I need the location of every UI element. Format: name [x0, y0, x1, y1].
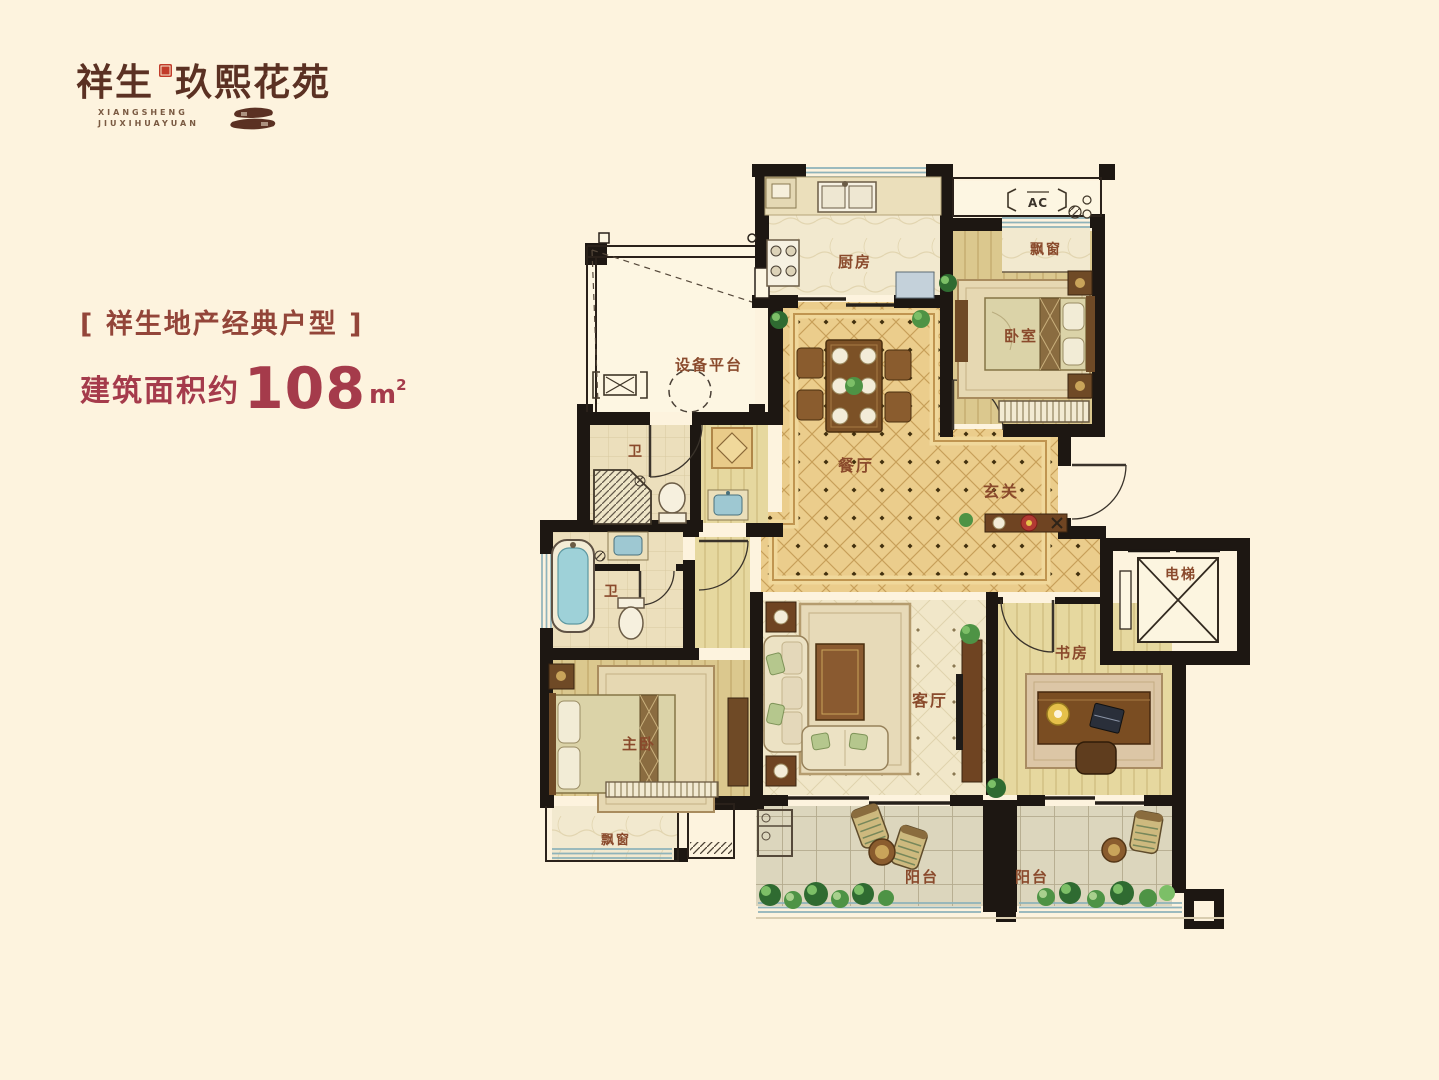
label-ac-platform: AC — [1028, 196, 1048, 210]
label-dining: 餐厅 — [837, 456, 874, 475]
plant-icon — [770, 311, 788, 329]
tv-icon — [956, 674, 963, 750]
lounge-chair-icon — [1129, 810, 1164, 854]
plant-icon — [986, 778, 1006, 798]
label-bath-upper: 卫 — [628, 444, 644, 460]
stove-icon — [767, 240, 799, 286]
fridge-icon — [896, 272, 934, 298]
chair-icon — [885, 392, 911, 422]
label-bedroom: 卧室 — [1004, 327, 1038, 345]
label-equipment-platform: 设备平台 — [675, 356, 743, 374]
label-living-room: 客厅 — [912, 691, 948, 710]
label-kitchen: 厨房 — [838, 253, 872, 271]
label-balcony-left: 阳台 — [905, 868, 939, 886]
toilet-icon-2 — [618, 598, 644, 639]
chair-icon — [797, 390, 823, 420]
vanity-sink-icon-2 — [608, 532, 648, 560]
decor-tile — [712, 428, 752, 468]
label-elevator: 电梯 — [1165, 566, 1197, 583]
bed-icon — [985, 296, 1095, 372]
wardrobe-icon — [606, 782, 718, 797]
plant-icon — [912, 310, 930, 328]
plant-icon — [845, 377, 863, 395]
loveseat-icon — [802, 726, 888, 770]
pillow — [1063, 303, 1084, 330]
plant-icon — [959, 513, 973, 527]
tv-cabinet-icon — [962, 640, 982, 782]
study-furniture — [1026, 674, 1162, 774]
master-corridor — [695, 537, 750, 648]
pillow — [558, 747, 580, 789]
label-master-bedroom: 主卧 — [622, 735, 656, 753]
label-balcony-right: 阳台 — [1015, 868, 1049, 886]
cabinet-icon — [955, 300, 968, 362]
floor-drain-icon-2 — [595, 551, 605, 561]
ac-drain-icon — [1069, 206, 1081, 218]
bed-icon — [549, 693, 675, 795]
pillow — [1063, 338, 1084, 365]
wardrobe-icon — [999, 401, 1089, 422]
floor-plan: 厨房 设备平台 卫 餐厅 玄关 卧室 飘窗 卫 电梯 客厅 书房 主卧 飘窗 阳… — [0, 0, 1439, 1080]
vanity-sink-icon — [708, 490, 748, 520]
page: 祥生 玖熙花苑 XIANGSHENG JIUXIHUAYUAN [ 祥生地产经典… — [0, 0, 1439, 1080]
floor-drain-icon — [635, 476, 645, 486]
chair-icon — [885, 350, 911, 380]
plant-icon — [939, 274, 957, 292]
coffee-table-icon — [816, 644, 864, 720]
sink-icon — [818, 181, 876, 212]
chair-icon — [797, 348, 823, 378]
desk-chair-icon — [1076, 742, 1116, 774]
label-study: 书房 — [1055, 644, 1089, 662]
label-bay-window-bottom: 飘窗 — [601, 832, 631, 848]
plant-icon — [960, 624, 980, 644]
pillow — [558, 701, 580, 743]
toilet-icon — [659, 483, 686, 523]
entry-door-arc — [1072, 465, 1126, 519]
side-window-hatch — [690, 842, 732, 854]
cabinet-icon — [728, 698, 748, 786]
label-bath-lower: 卫 — [604, 584, 620, 600]
foyer-console — [985, 514, 1067, 532]
label-foyer: 玄关 — [983, 482, 1019, 501]
label-bay-window-top: 飘窗 — [1030, 241, 1062, 258]
bathtub-icon — [552, 540, 594, 632]
